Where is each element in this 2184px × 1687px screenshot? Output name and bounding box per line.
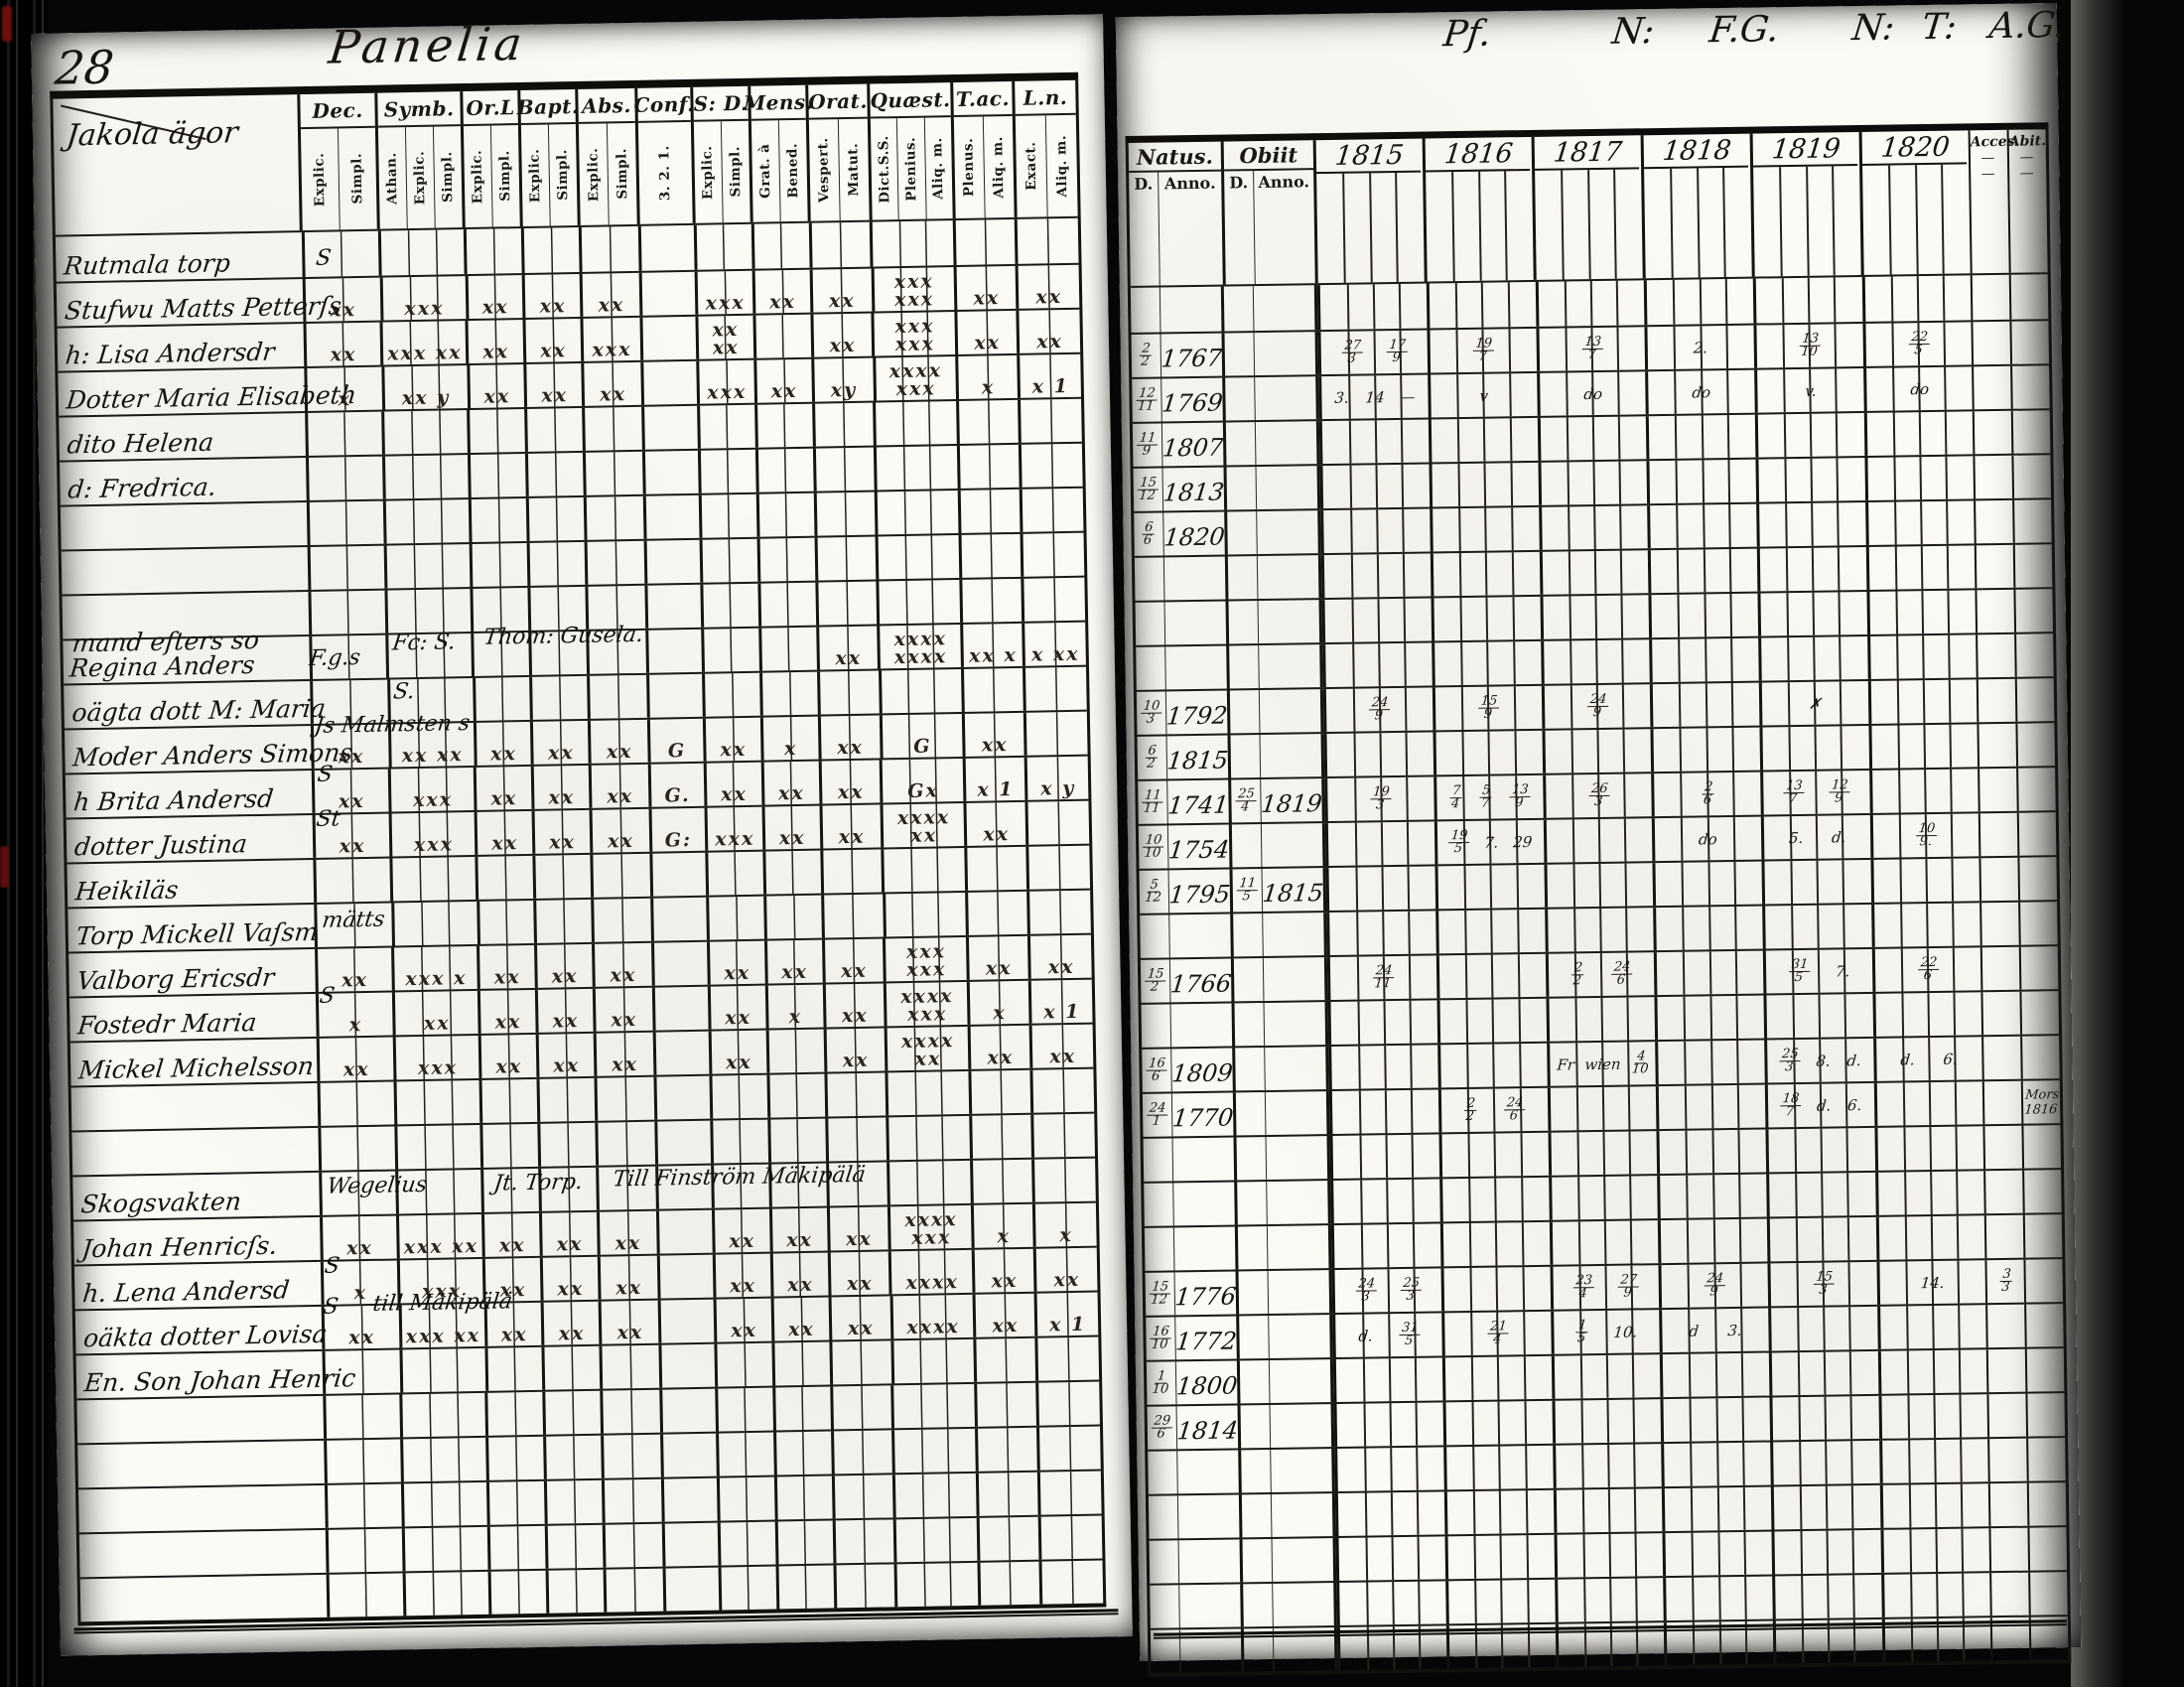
- acces-cell: [1976, 590, 2015, 633]
- entry-token: v.: [1804, 381, 1817, 399]
- year-entry-cell: [1437, 1044, 1547, 1088]
- row-name-cell: [80, 1575, 327, 1622]
- year-entry-cell: 26: [1651, 773, 1760, 817]
- date-fraction: 129: [1828, 779, 1850, 804]
- left-table-body: Rutmala torpSStufwu Matts Petterſsxxxxxx…: [56, 218, 1103, 1622]
- acces-cell: [1987, 1439, 2027, 1482]
- marks-cell: [718, 1567, 776, 1611]
- date-fraction: 246: [1503, 1097, 1526, 1122]
- date-fraction: 410: [1631, 1051, 1650, 1075]
- year-entry-cell: [1771, 1485, 1880, 1530]
- year-entry-cell: [1755, 458, 1864, 502]
- column-group-qust: Quæst.Dict.S.S.Plenius.Aliq. m.: [867, 82, 952, 220]
- year-entry-cell: [1320, 464, 1430, 508]
- entry-token: do: [1692, 383, 1711, 401]
- acces-cell: [1989, 1573, 2029, 1617]
- obiit-day-cell: [1239, 1271, 1270, 1314]
- date-fraction: 137: [1580, 337, 1603, 361]
- marks-cell: x: [971, 1204, 1033, 1248]
- entry-token: d.: [1358, 1327, 1374, 1344]
- marks-cell: xx: [473, 722, 531, 766]
- acces-cell: [1979, 903, 2019, 946]
- date-fraction: 57: [1478, 785, 1493, 810]
- year-entry-cell: ✗: [1759, 681, 1868, 726]
- row-name-cell: Rutmala torp: [56, 232, 302, 282]
- marks-cell: xx: [582, 362, 642, 406]
- marks-cell: xx: [534, 944, 593, 988]
- marks-cell: xxx xxx: [872, 312, 956, 356]
- natus-anno-cell: 1769: [1161, 378, 1226, 422]
- handwritten-note: S: [322, 1295, 340, 1320]
- entry-token: d.: [1831, 828, 1846, 846]
- year-entry-cell: [1865, 545, 1975, 590]
- marks-cell: [813, 492, 876, 536]
- year-entry-cell: [1658, 1219, 1767, 1264]
- subcolumn: Matut.: [838, 119, 870, 221]
- marks-cell: xx: [973, 1294, 1035, 1337]
- subcolumn: Explic.: [521, 125, 550, 226]
- natus-year: 1792: [1165, 702, 1229, 731]
- marks-cell: [641, 406, 698, 450]
- marks-cell: [640, 361, 697, 405]
- year-entry-cell: [1880, 1528, 1989, 1573]
- obiit-day-cell: [1225, 333, 1256, 375]
- marks-cell: [977, 1517, 1039, 1561]
- year-column-1816: 1816: [1423, 137, 1534, 282]
- marks-cell: [400, 1393, 486, 1438]
- subcolumn: Explic.: [405, 127, 435, 228]
- page-title: Panelia: [327, 17, 529, 74]
- column-sublabels: Dict.S.S.Plenius.Aliq. m.: [871, 115, 953, 219]
- year-entry-cell: [1864, 456, 1974, 500]
- marks-cell: [1035, 1337, 1100, 1381]
- entry-token: Fr: [1556, 1055, 1574, 1073]
- marks-cell: [662, 1568, 719, 1612]
- marks-cell: [891, 1429, 976, 1474]
- obiit-anno-cell: 1815: [1263, 868, 1327, 912]
- subcolumn-label: Aliq. m.: [931, 137, 945, 200]
- year-entry-cell: [1663, 1576, 1772, 1620]
- year-entry-cell: [1766, 1173, 1875, 1217]
- marks-cell: [534, 900, 593, 943]
- year-entry-cell: 249: [1323, 687, 1433, 732]
- year-entry-cell: [1323, 642, 1433, 687]
- natus-year: 1807: [1161, 434, 1225, 463]
- year-column-1818: 1818: [1641, 134, 1752, 279]
- entry-token: —: [1400, 387, 1417, 405]
- abiit-cell: [2009, 274, 2049, 320]
- row-name: Rutmala torp: [63, 250, 231, 278]
- year-entry-cell: 1310: [1753, 324, 1862, 368]
- abiit-column-header: Abit. — —: [2007, 129, 2048, 273]
- natus-day-cell: [1150, 1585, 1180, 1627]
- marks-cell: [324, 1439, 402, 1482]
- natus-day-cell: 512: [1140, 870, 1170, 913]
- year-entry-cell: 109.: [1869, 813, 1979, 858]
- marks-cell: [402, 1527, 488, 1572]
- marks-cell: [639, 272, 696, 316]
- year-entry-cell: 5.d.: [1761, 815, 1870, 860]
- row-name-cell: mand efters so Regina Anders: [63, 636, 309, 684]
- column-group-sd: S: D.Explic.Simpl.: [690, 86, 751, 223]
- row-name-cell: Dotter Maria Elisabeth: [58, 368, 305, 416]
- year-entry-cell: [1328, 1000, 1437, 1045]
- year-entry-cell: [1549, 1176, 1658, 1220]
- subcolumn-label: Simpl.: [498, 150, 512, 202]
- subcolumn: Simpl.: [721, 121, 751, 222]
- subcolumn: Explic.: [694, 121, 723, 222]
- year-entry-cell: [1661, 1398, 1770, 1443]
- year-entry-cell: 273179: [1318, 331, 1428, 375]
- date-fraction: 115: [1236, 878, 1259, 903]
- obiit-anno-cell: [1257, 510, 1321, 554]
- marks-cell: [542, 1346, 601, 1390]
- obiit-day-cell: [1236, 1092, 1267, 1135]
- year-entry-cell: [1541, 639, 1650, 684]
- year-entry-cell: [1648, 549, 1757, 594]
- marks-cell: [960, 579, 1023, 623]
- marks-cell: [705, 852, 763, 896]
- marks-cell: [537, 1078, 596, 1122]
- abiit-cell: [2028, 1572, 2068, 1616]
- marks-cell: [1026, 891, 1091, 934]
- marks-cell: [1015, 218, 1079, 264]
- marks-cell: G: [647, 719, 704, 763]
- row-name: Skogsvakten: [79, 1189, 242, 1216]
- column-label: T.ac.: [953, 81, 1013, 115]
- natus-anno-cell: [1179, 1584, 1244, 1627]
- row-name-cell: Johan Henricſs.: [73, 1217, 320, 1265]
- year-label: 1818: [1642, 134, 1752, 170]
- year-entry-cell: do: [1645, 370, 1754, 415]
- natus-day-cell: 241: [1143, 1093, 1173, 1136]
- date-fraction: 22: [1570, 962, 1585, 987]
- marks-cell: xx: [592, 943, 652, 987]
- year-entry-cell: [1432, 641, 1541, 686]
- marks-cell: [318, 1126, 396, 1170]
- date-fraction: 152: [1144, 968, 1166, 993]
- page-number: 28: [53, 40, 116, 94]
- year-entry-cell: [1653, 862, 1762, 907]
- row-name-cell: h. Lena Andersd: [74, 1262, 321, 1310]
- year-entry-cell: 225: [1862, 322, 1972, 366]
- natus-anno-cell: 1772: [1175, 1316, 1240, 1359]
- abiit-note: Mors 1816: [2022, 1087, 2062, 1118]
- marks-cell: [706, 897, 764, 940]
- entry-token: 3.: [1334, 388, 1350, 406]
- marks-cell: G: [879, 714, 963, 759]
- marks-cell: [476, 856, 534, 900]
- year-entry-cell: [1867, 679, 1977, 724]
- marks-cell: [639, 317, 696, 360]
- subcolumn: Simpl.: [433, 126, 463, 227]
- marks-cell: [1023, 667, 1087, 711]
- year-column-1819: 1819: [1750, 132, 1861, 277]
- marks-cell: xx: [593, 988, 653, 1032]
- marks-cell: [477, 901, 535, 944]
- date-fraction: 296: [1151, 1415, 1173, 1440]
- marks-cell: [959, 534, 1022, 578]
- year-entry-cell: [1867, 634, 1977, 679]
- obiit-anno-cell: [1267, 1181, 1331, 1224]
- row-name-cell: [71, 1083, 318, 1131]
- marks-cell: [584, 496, 644, 540]
- year-entry-cell: [1319, 419, 1429, 464]
- marks-cell: [470, 543, 528, 587]
- marks-cell: [661, 1478, 718, 1522]
- year-entry-cell: [1439, 1133, 1549, 1178]
- acces-cell: [1971, 275, 2010, 321]
- marks-cell: [953, 219, 1016, 265]
- natus-day-cell: 1610: [1146, 1317, 1176, 1359]
- marks-cell: [1020, 489, 1084, 532]
- marks-cell: xx: [466, 320, 524, 363]
- acces-cell: [1979, 858, 2019, 902]
- year-entry-cell: 234279: [1550, 1265, 1659, 1310]
- natus-day-cell: [1145, 1227, 1175, 1270]
- year-entry-cell: [1646, 415, 1755, 460]
- marks-cell: [893, 1518, 978, 1563]
- obiit-anno-cell: [1273, 1538, 1337, 1582]
- marks-cell: [829, 1340, 891, 1384]
- date-fraction: 249: [1368, 697, 1391, 722]
- year-entry-cell: v: [1428, 373, 1537, 418]
- row-name: Dotter Maria Elisabeth: [66, 382, 358, 412]
- row-name-cell: [71, 1128, 318, 1176]
- left-table-header: Dec.Explic.Simpl.Symb.Athan.Explic.Simpl…: [53, 80, 1077, 237]
- obiit-day-cell: [1225, 377, 1256, 420]
- entry-token: wien: [1584, 1054, 1622, 1073]
- marks-cell: [591, 899, 651, 942]
- row-name: Torp Mickell Vaſsm: [74, 919, 319, 949]
- year-entry-cell: [1879, 1439, 1988, 1483]
- subcolumn-label: Matut.: [847, 143, 861, 197]
- natus-day-cell: 22: [1132, 334, 1162, 376]
- subcolumn-label: Explic.: [471, 149, 484, 204]
- column-group-orat: Orat.Vespert.Matut.: [805, 84, 870, 221]
- marks-cell: [1024, 712, 1088, 756]
- year-entry-cell: 22246: [1438, 1088, 1548, 1133]
- row-name-cell: dito Helena: [59, 413, 305, 461]
- row-name-cell: [77, 1441, 324, 1488]
- handwritten-annotation: A.G.: [1987, 5, 2068, 47]
- date-fraction: 253: [1779, 1049, 1802, 1073]
- year-entry-cell: [1771, 1530, 1880, 1575]
- marks-cell: [958, 490, 1021, 533]
- obiit-anno-cell: [1265, 1047, 1329, 1090]
- acces-cell: [1989, 1528, 2029, 1572]
- year-entry-cell: [1877, 1349, 1986, 1394]
- year-entry-cell: [1539, 505, 1648, 550]
- marks-cell: xx: [536, 1034, 595, 1077]
- natus-anno-cell: [1165, 645, 1230, 689]
- abiit-cell: [2022, 1170, 2062, 1213]
- natus-anno-cell: [1164, 601, 1229, 644]
- abiit-cell: [2012, 455, 2052, 498]
- right-table-header: Natus. D. Anno. Obiit D. Anno. 181518161…: [1129, 129, 2048, 288]
- handwritten-note: Js Malmsten s: [313, 711, 471, 739]
- marks-cell: [775, 1565, 834, 1609]
- date-fraction: 193: [1370, 786, 1393, 811]
- marks-cell: [378, 229, 465, 276]
- obiit-anno-cell: [1267, 1136, 1331, 1180]
- row-name: h Brita Andersd: [72, 786, 275, 815]
- marks-cell: [892, 1474, 977, 1518]
- natus-day-label: D.: [1129, 172, 1160, 285]
- date-fraction: 249: [1586, 694, 1609, 719]
- year-entry-cell: [1337, 1581, 1446, 1625]
- date-fraction: 226: [1917, 957, 1940, 982]
- subcolumn-label: Explic.: [701, 145, 715, 200]
- year-entry-cell: [1439, 1178, 1549, 1222]
- marks-cell: [473, 677, 531, 721]
- marks-cell: [773, 1432, 832, 1476]
- year-entry-cell: [1544, 863, 1653, 908]
- natus-anno-cell: 1776: [1174, 1271, 1239, 1315]
- row-name-cell: oäkta dotter Lovisa: [75, 1307, 323, 1354]
- year-entry-cell: [1869, 769, 1979, 813]
- marks-cell: [825, 1117, 887, 1161]
- year-label: 1817: [1533, 135, 1643, 171]
- acces-cell: [1981, 992, 2021, 1036]
- obiit-anno-cell: [1265, 1002, 1329, 1046]
- marks-cell: [603, 1524, 663, 1568]
- obiit-day-cell: [1233, 914, 1264, 956]
- marks-cell: [527, 542, 586, 586]
- column-group-mens: Mens.Grat. àBened.: [748, 85, 808, 222]
- marks-cell: [771, 1342, 830, 1386]
- date-fraction: 109.: [1915, 823, 1938, 848]
- marks-cell: [821, 894, 884, 937]
- column-group-orl: Or.LExplic.Simpl.: [460, 90, 520, 227]
- year-entry-cell: [1871, 903, 1980, 947]
- marks-cell: [468, 454, 526, 497]
- marks-cell: [815, 582, 878, 626]
- natus-day-cell: 166: [1142, 1049, 1172, 1091]
- marks-cell: [479, 1079, 538, 1123]
- year-entry-cell: [1548, 1131, 1657, 1176]
- year-entry-cell: do: [1537, 371, 1646, 416]
- year-entry-cell: [1655, 996, 1764, 1041]
- year-entry-cell: 137129: [1760, 771, 1869, 815]
- year-entry-cell: [1653, 907, 1762, 951]
- entry-token: 3.: [1727, 1321, 1743, 1338]
- entry-token: 7.: [1835, 962, 1850, 980]
- marks-cell: [403, 1572, 489, 1617]
- marks-cell: [654, 1121, 711, 1165]
- subcolumn-label: Vespert.: [817, 138, 831, 204]
- year-entry-cell: [1552, 1399, 1661, 1444]
- marks-cell: xx: [465, 275, 523, 319]
- date-fraction: 263: [1587, 783, 1610, 808]
- obiit-day-cell: [1242, 1494, 1273, 1537]
- marks-cell: xx: [316, 1038, 394, 1081]
- marks-cell: [1025, 801, 1090, 845]
- marks-cell: xxx: [695, 271, 753, 315]
- column-sublabels: Explic.Simpl.: [579, 121, 637, 225]
- obiit-anno-cell: [1256, 421, 1320, 465]
- abiit-cell: [2025, 1348, 2065, 1392]
- marks-cell: [646, 674, 703, 718]
- marks-cell: [582, 407, 642, 451]
- column-group-conf: Conf.3. 2. 1.: [634, 87, 693, 224]
- natus-anno-cell: 1795: [1168, 869, 1233, 913]
- natus-day-cell: [1144, 1138, 1174, 1181]
- marks-cell: xxxx xxx: [873, 356, 957, 401]
- year-entry-cell: 2411: [1327, 955, 1436, 1000]
- marks-cell: xx: [822, 983, 885, 1027]
- entry-token: 14.: [1920, 1273, 1945, 1291]
- year-entry-cell: [1538, 461, 1647, 505]
- date-fraction: 246: [1609, 962, 1632, 987]
- handwritten-note: S: [318, 984, 336, 1009]
- year-entry-cell: [1865, 500, 1975, 545]
- year-column-1817: 1817: [1532, 135, 1643, 280]
- natus-anno-cell: [1173, 1182, 1238, 1225]
- obiit-anno-cell: [1255, 332, 1319, 375]
- marks-cell: xxxx xxx: [887, 1205, 972, 1250]
- marks-cell: [643, 540, 700, 584]
- marks-cell: [832, 1519, 894, 1563]
- year-entry-cell: [1555, 1578, 1664, 1622]
- obiit-anno-cell: [1255, 376, 1319, 420]
- marks-cell: xx: [467, 364, 525, 408]
- marks-cell: [590, 854, 650, 898]
- marks-cell: x 1: [963, 758, 1025, 801]
- right-annotations: Pf.N:F.G.N:T:A.G.: [1116, 3, 2057, 17]
- handwritten-note: Till Finström Mäkipälä: [612, 1163, 867, 1193]
- marks-cell: [306, 501, 384, 545]
- year-entry-cell: 1510.: [1551, 1310, 1660, 1354]
- subcolumn-label: Bened.: [786, 143, 800, 199]
- natus-day-cell: [1131, 287, 1161, 332]
- year-entry-cell: d.315: [1333, 1313, 1442, 1357]
- year-entry-cell: [1650, 683, 1759, 728]
- date-fraction: 273: [1341, 340, 1364, 364]
- year-label: 1819: [1751, 132, 1861, 168]
- natus-day-cell: 119: [1133, 423, 1163, 466]
- marks-cell: [870, 220, 954, 267]
- year-entry-cell: [1431, 552, 1540, 597]
- obiit-anno-cell: [1254, 285, 1318, 331]
- row-name: Valborg Ericsdr: [75, 965, 275, 994]
- marks-cell: xx: [478, 1035, 537, 1078]
- year-entry-cell: [1651, 728, 1760, 773]
- year-entry-cell: 243253: [1332, 1268, 1441, 1313]
- row-name-cell: [78, 1485, 325, 1533]
- year-entry-cell: [1654, 951, 1763, 996]
- acces-cell: [1973, 411, 2012, 455]
- marks-cell: x 1: [1028, 980, 1093, 1024]
- natus-day-cell: [1136, 646, 1166, 689]
- subcolumn: Vespert.: [809, 119, 840, 221]
- year-entry-cell: d3.: [1659, 1309, 1768, 1353]
- date-fraction: 512: [1145, 880, 1163, 905]
- marks-cell: [700, 584, 758, 628]
- acces-cell: [1978, 724, 2017, 768]
- marks-cell: [698, 494, 756, 538]
- year-entry-cell: [1535, 280, 1644, 327]
- row-name: h. Lena Andersd: [81, 1277, 291, 1306]
- column-sublabels: Plenus.Aliq. m.: [954, 114, 1015, 218]
- obiit-day-cell: [1237, 1137, 1268, 1180]
- marks-cell: xx: [392, 991, 478, 1036]
- natus-anno-cell: 1800: [1176, 1360, 1241, 1404]
- year-entry-cell: [1657, 1175, 1766, 1219]
- acces-cell: 33: [1985, 1260, 2025, 1304]
- marks-cell: xx: [827, 1251, 889, 1295]
- natus-year: 1766: [1169, 969, 1233, 998]
